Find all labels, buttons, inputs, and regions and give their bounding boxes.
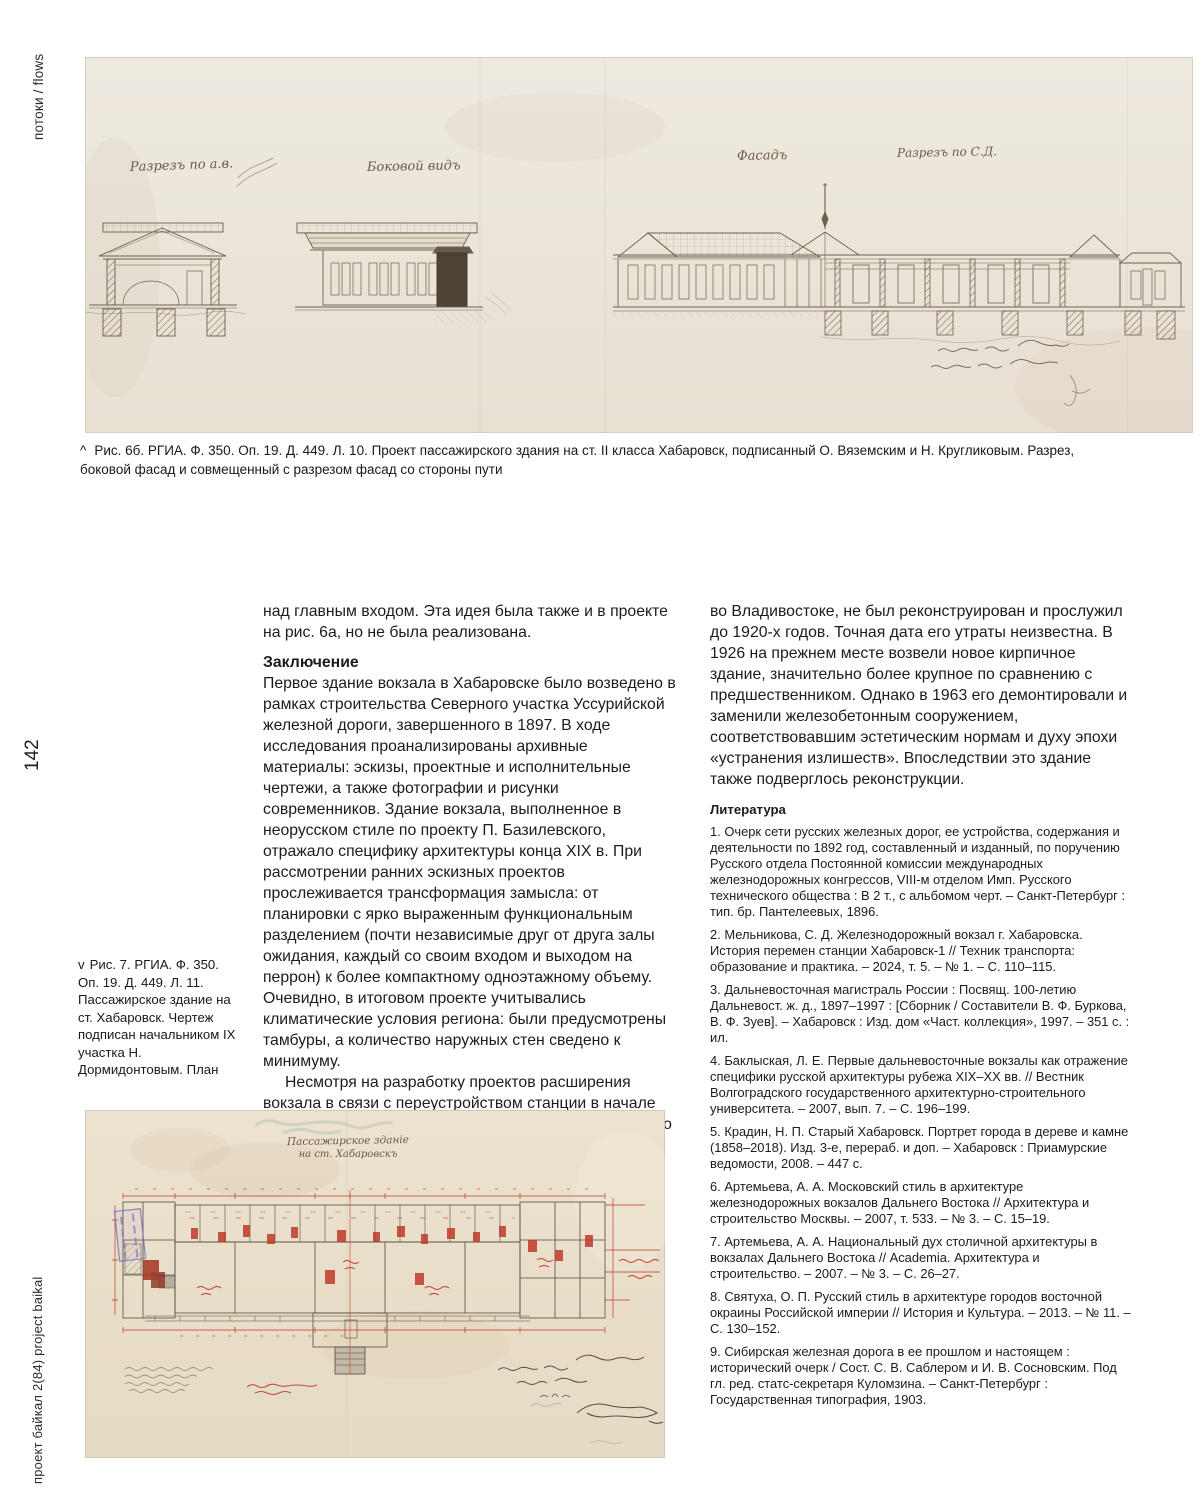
reference-item: 3. Дальневосточная магистраль России : П… bbox=[710, 982, 1131, 1046]
references-heading: Литература bbox=[710, 802, 1131, 818]
figure-7-plan-drawing: Пассажирское зданіе на ст. Хабаровскъ bbox=[85, 1110, 665, 1458]
drawing-label-side-view: Боковой видъ bbox=[366, 158, 461, 175]
page-number: 142 bbox=[22, 739, 44, 771]
archive-stamp bbox=[114, 1209, 145, 1261]
reference-item: 7. Артемьева, А. А. Национальный дух сто… bbox=[710, 1234, 1131, 1282]
figure-6b-caption-text: Рис. 6б. РГИА. Ф. 350. Оп. 19. Д. 449. Л… bbox=[80, 443, 1074, 477]
figure-6b-caption: ^Рис. 6б. РГИА. Ф. 350. Оп. 19. Д. 449. … bbox=[80, 442, 1125, 479]
plan-title-line2: на ст. Хабаровскъ bbox=[299, 1149, 398, 1160]
drawing-label-section-cd: Разрезъ по С.Д. bbox=[896, 144, 997, 160]
rubric-vertical-label: потоки / flows bbox=[31, 54, 46, 140]
reference-item: 4. Баклыская, Л. Е. Первые дальневосточн… bbox=[710, 1053, 1131, 1117]
reference-item: 1. Очерк сети русских железных дорог, ее… bbox=[710, 824, 1131, 920]
caption-arrow-up: ^ bbox=[80, 443, 86, 458]
paragraph-vladivostok: во Владивостоке, не был реконструирован … bbox=[710, 601, 1131, 790]
reference-item: 8. Святуха, О. П. Русский стиль в архите… bbox=[710, 1289, 1131, 1337]
article-column-right: во Владивостоке, не был реконструирован … bbox=[710, 601, 1131, 1415]
plan-title-line1: Пассажирское зданіе bbox=[286, 1134, 409, 1148]
figure-6b-drawing: Разрезъ по а.в. Боковой видъ Фасадъ Разр… bbox=[85, 57, 1193, 433]
journal-vertical-label: проект байкал 2(84) project baikal bbox=[30, 1276, 45, 1484]
reference-item: 6. Артемьева, А. А. Московский стиль в а… bbox=[710, 1179, 1131, 1227]
section-heading-conclusion: Заключение bbox=[263, 652, 676, 673]
drawing-label-facade: Фасадъ bbox=[737, 148, 788, 164]
figure-7-caption: vРис. 7. РГИА. Ф. 350. Оп. 19. Д. 449. Л… bbox=[78, 956, 238, 1079]
reference-item: 2. Мельникова, С. Д. Железнодорожный вок… bbox=[710, 927, 1131, 975]
magazine-page: потоки / flows 142 проект байкал 2(84) p… bbox=[0, 0, 1200, 1492]
reference-item: 5. Крадин, Н. П. Старый Хабаровск. Портр… bbox=[710, 1124, 1131, 1172]
article-column-left: над главным входом. Эта идея была также … bbox=[263, 601, 676, 1156]
paragraph-conclusion: Первое здание вокзала в Хабаровске было … bbox=[263, 673, 676, 1072]
paragraph-continued: над главным входом. Эта идея была также … bbox=[263, 601, 676, 643]
reference-item: 9. Сибирская железная дорога в ее прошло… bbox=[710, 1344, 1131, 1408]
caption-arrow-down: v bbox=[78, 957, 85, 972]
drawing-paper bbox=[85, 57, 1193, 433]
figure-7-caption-text: Рис. 7. РГИА. Ф. 350. Оп. 19. Д. 449. Л.… bbox=[78, 957, 235, 1077]
